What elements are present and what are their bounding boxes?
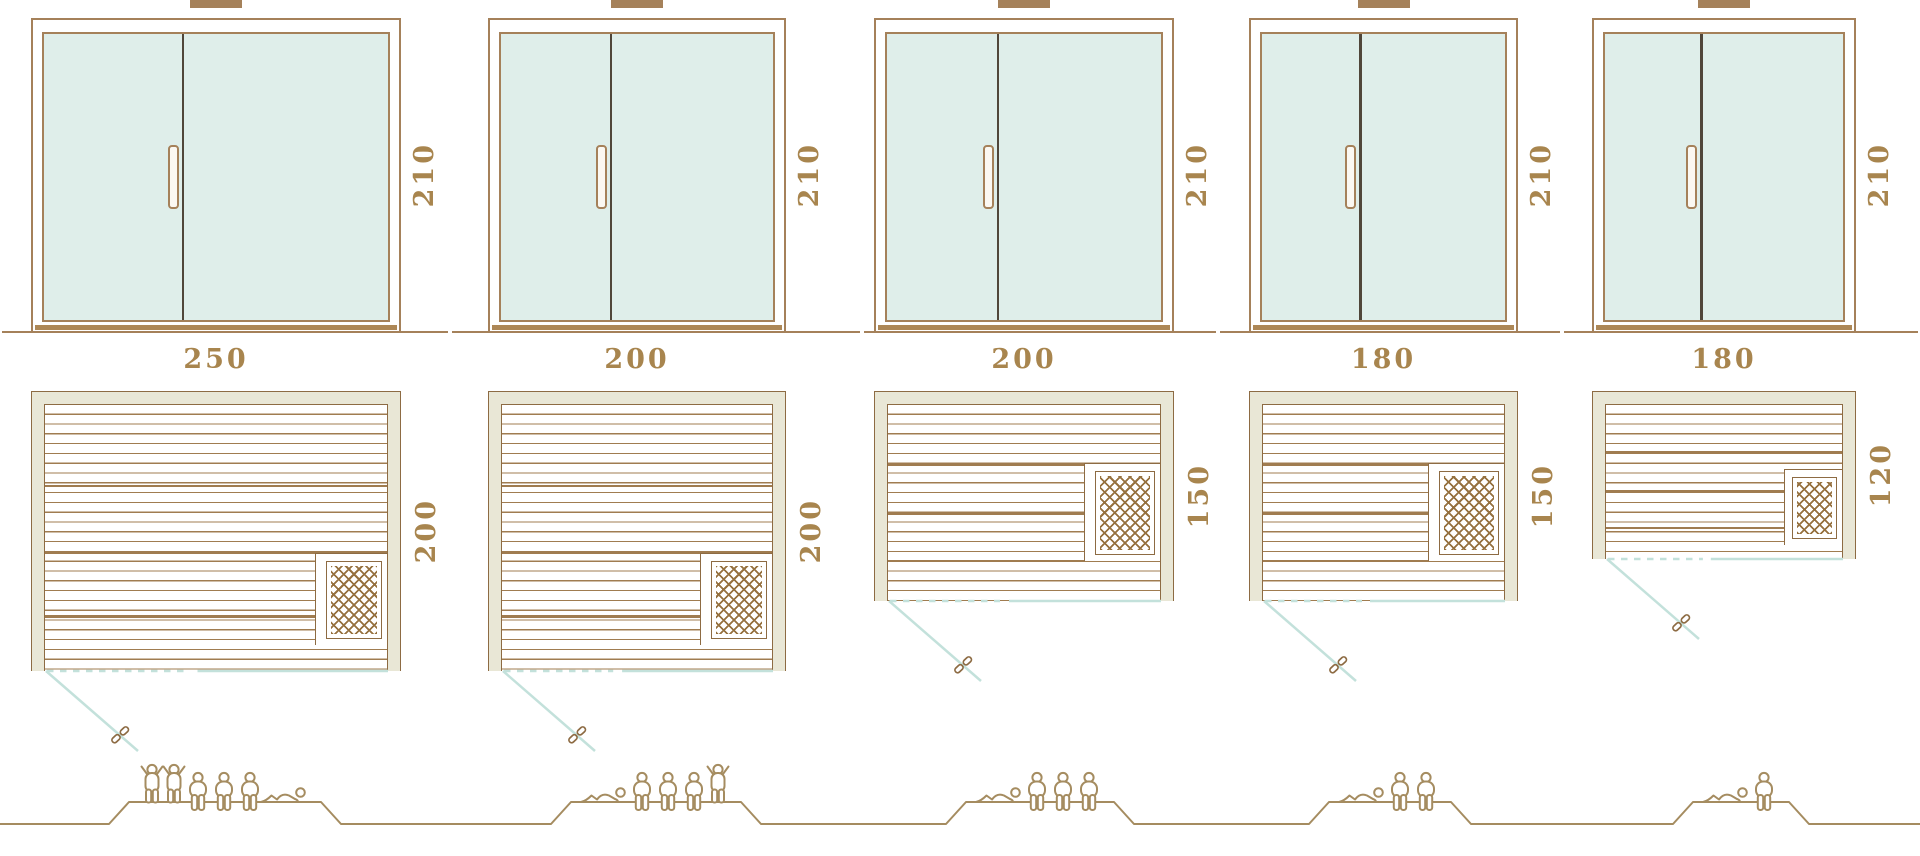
capacity-figures xyxy=(1218,736,1562,856)
depth-dimension-label: 150 xyxy=(1528,391,1559,601)
roof-vent-icon xyxy=(998,0,1050,8)
door-sill xyxy=(492,325,782,330)
depth-value: 150 xyxy=(1528,463,1559,528)
ground-line xyxy=(1564,331,1918,333)
depth-dimension-label: 200 xyxy=(411,391,442,671)
height-value: 210 xyxy=(1526,142,1557,207)
capacity-figures xyxy=(862,736,1218,856)
depth-dimension-label: 120 xyxy=(1866,391,1897,559)
heater-zone xyxy=(700,553,772,645)
heater-zone xyxy=(315,553,387,645)
heater-zone xyxy=(1428,463,1504,561)
glass-front xyxy=(1260,32,1507,322)
ground-line xyxy=(864,331,1216,333)
sauna-model-3: 210 200 150 xyxy=(862,0,1218,856)
ground-line xyxy=(1220,331,1560,333)
floor-plan xyxy=(31,391,401,671)
door-sill xyxy=(1596,325,1852,330)
height-value: 210 xyxy=(409,142,440,207)
roof-vent-icon xyxy=(190,0,242,8)
width-dimension-label: 180 xyxy=(1249,344,1518,375)
width-value: 180 xyxy=(1691,344,1756,375)
capacity-figures xyxy=(450,736,862,856)
floor-plan xyxy=(874,391,1174,601)
height-value: 210 xyxy=(794,142,825,207)
bench-planks xyxy=(501,404,773,671)
ground-line xyxy=(452,331,860,333)
height-dimension-label: 210 xyxy=(1864,40,1895,310)
glass-front xyxy=(499,32,775,322)
door-handle-icon xyxy=(1686,145,1697,209)
depth-dimension-label: 150 xyxy=(1184,391,1215,601)
bench-planks xyxy=(1605,404,1843,559)
height-dimension-label: 210 xyxy=(1182,40,1213,310)
bench-planks xyxy=(887,404,1161,601)
heater-icon xyxy=(326,561,382,639)
sauna-model-2: 210 200 200 xyxy=(450,0,862,856)
height-value: 210 xyxy=(1182,142,1213,207)
height-value: 210 xyxy=(1864,142,1895,207)
heater-icon xyxy=(711,561,767,639)
width-value: 200 xyxy=(991,344,1056,375)
door-sill xyxy=(35,325,397,330)
door-frame-divider xyxy=(997,34,1000,320)
depth-dimension-label: 200 xyxy=(796,391,827,671)
door-sill xyxy=(1253,325,1514,330)
door-handle-icon xyxy=(168,145,179,209)
bench-planks xyxy=(1262,404,1505,601)
door-elevation xyxy=(488,18,786,333)
door-swing xyxy=(874,595,1174,705)
height-dimension-label: 210 xyxy=(409,40,440,310)
floor-plan xyxy=(488,391,786,671)
width-dimension-label: 200 xyxy=(874,344,1174,375)
door-frame-divider xyxy=(1359,34,1362,320)
door-handle-icon xyxy=(983,145,994,209)
sauna-model-1: 210 250 200 xyxy=(0,0,450,856)
depth-value: 200 xyxy=(796,498,827,563)
door-frame-divider xyxy=(1700,34,1703,320)
width-dimension-label: 200 xyxy=(488,344,786,375)
roof-vent-icon xyxy=(1698,0,1750,8)
heater-icon xyxy=(1792,477,1837,539)
depth-value: 200 xyxy=(411,498,442,563)
door-elevation xyxy=(1249,18,1518,333)
door-handle-icon xyxy=(1345,145,1356,209)
door-sill xyxy=(878,325,1170,330)
heater-icon xyxy=(1439,471,1499,555)
door-frame-divider xyxy=(610,34,613,320)
door-elevation xyxy=(31,18,401,333)
roof-vent-icon xyxy=(611,0,663,8)
capacity-figures xyxy=(0,736,450,856)
depth-value: 150 xyxy=(1184,463,1215,528)
sauna-size-diagram: 210 250 200 xyxy=(0,0,1920,856)
width-dimension-label: 180 xyxy=(1592,344,1856,375)
width-value: 180 xyxy=(1351,344,1416,375)
bench-planks xyxy=(44,404,388,671)
door-handle-icon xyxy=(596,145,607,209)
capacity-figures xyxy=(1562,736,1920,856)
heater-zone xyxy=(1084,463,1160,561)
door-elevation xyxy=(1592,18,1856,333)
floor-plan xyxy=(1249,391,1518,601)
heater-icon xyxy=(1095,471,1155,555)
glass-front xyxy=(1603,32,1845,322)
door-swing xyxy=(1249,595,1518,705)
width-dimension-label: 250 xyxy=(31,344,401,375)
door-elevation xyxy=(874,18,1174,333)
sauna-model-4: 210 180 150 xyxy=(1218,0,1562,856)
sauna-model-5: 210 180 120 xyxy=(1562,0,1920,856)
height-dimension-label: 210 xyxy=(794,40,825,310)
roof-vent-icon xyxy=(1358,0,1410,8)
heater-zone xyxy=(1784,469,1842,545)
ground-line xyxy=(2,331,448,333)
depth-value: 120 xyxy=(1866,442,1897,507)
floor-plan xyxy=(1592,391,1856,559)
door-swing xyxy=(1592,553,1856,663)
glass-front xyxy=(42,32,390,322)
door-frame-divider xyxy=(182,34,185,320)
glass-front xyxy=(885,32,1163,322)
width-value: 250 xyxy=(183,344,248,375)
height-dimension-label: 210 xyxy=(1526,40,1557,310)
width-value: 200 xyxy=(604,344,669,375)
